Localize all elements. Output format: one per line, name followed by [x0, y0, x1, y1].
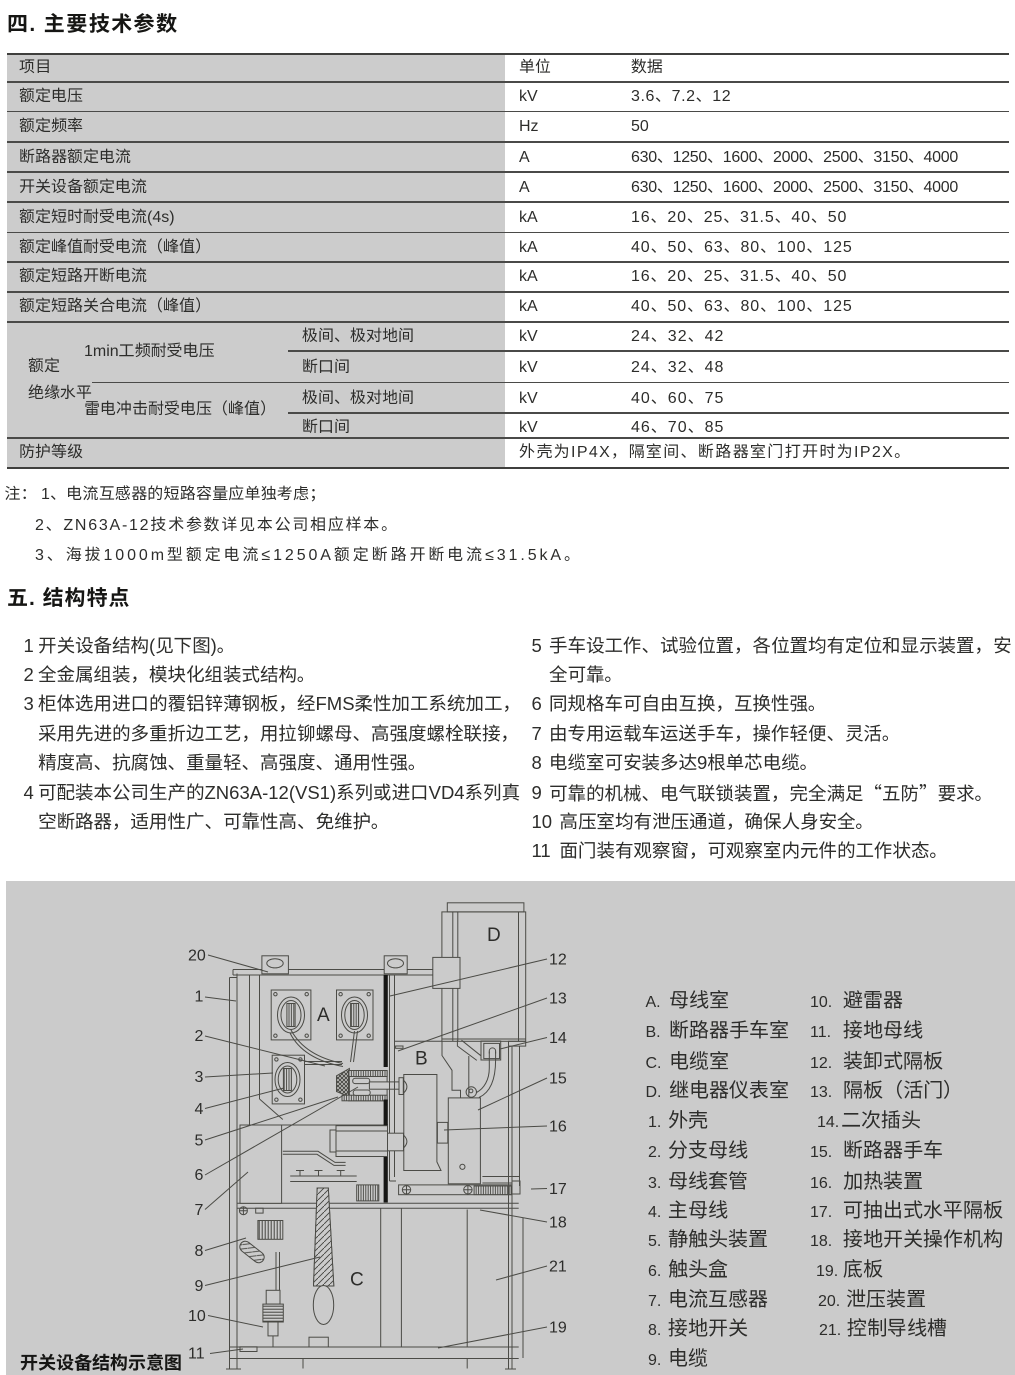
- svg-text:18.: 18.: [810, 1233, 832, 1250]
- svg-text:加热装置: 加热装置: [843, 1171, 923, 1193]
- svg-text:18: 18: [549, 1215, 567, 1232]
- svg-text:16.: 16.: [810, 1175, 832, 1192]
- svg-text:避雷器: 避雷器: [843, 990, 903, 1012]
- svg-text:外壳: 外壳: [668, 1110, 708, 1132]
- svg-text:母线套管: 母线套管: [668, 1171, 748, 1193]
- svg-text:8: 8: [195, 1243, 204, 1260]
- svg-text:泄压装置: 泄压装置: [846, 1289, 926, 1311]
- svg-text:B: B: [415, 1049, 428, 1070]
- svg-text:2: 2: [195, 1028, 204, 1045]
- svg-text:电流互感器: 电流互感器: [668, 1288, 768, 1311]
- svg-text:8.: 8.: [648, 1322, 661, 1339]
- svg-text:B.: B.: [646, 1024, 661, 1041]
- svg-text:7: 7: [195, 1202, 204, 1219]
- svg-text:19: 19: [549, 1319, 567, 1336]
- svg-text:17.: 17.: [810, 1204, 832, 1221]
- svg-text:15: 15: [549, 1071, 567, 1088]
- svg-text:电缆室: 电缆室: [669, 1051, 729, 1073]
- svg-text:触头盒: 触头盒: [668, 1258, 728, 1281]
- svg-text:D: D: [487, 925, 501, 946]
- svg-text:9: 9: [195, 1278, 204, 1295]
- svg-text:2.: 2.: [648, 1144, 661, 1161]
- svg-text:断路器手车: 断路器手车: [843, 1139, 943, 1162]
- svg-text:断路器手车室: 断路器手车室: [669, 1019, 789, 1042]
- svg-text:C.: C.: [646, 1055, 662, 1072]
- svg-text:分支母线: 分支母线: [668, 1140, 748, 1162]
- svg-text:21: 21: [549, 1258, 567, 1275]
- svg-text:4: 4: [195, 1101, 204, 1118]
- svg-text:A.: A.: [646, 994, 661, 1011]
- svg-text:接地母线: 接地母线: [843, 1019, 923, 1042]
- svg-text:主母线: 主母线: [668, 1200, 728, 1222]
- svg-text:15.: 15.: [810, 1144, 832, 1161]
- svg-text:继电器仪表室: 继电器仪表室: [669, 1080, 789, 1102]
- svg-text:6: 6: [195, 1167, 204, 1184]
- svg-text:20: 20: [188, 948, 206, 965]
- svg-text:6.: 6.: [648, 1263, 661, 1280]
- svg-text:可抽出式水平隔板: 可抽出式水平隔板: [843, 1200, 1003, 1222]
- svg-text:17: 17: [549, 1181, 567, 1198]
- svg-text:装卸式隔板: 装卸式隔板: [843, 1051, 943, 1073]
- svg-text:11.: 11.: [810, 1024, 831, 1041]
- svg-text:1: 1: [195, 989, 204, 1006]
- svg-text:C: C: [350, 1270, 364, 1291]
- svg-text:10: 10: [188, 1308, 206, 1325]
- svg-text:控制导线槽: 控制导线槽: [847, 1318, 947, 1340]
- svg-text:4.: 4.: [648, 1204, 661, 1221]
- svg-text:母线室: 母线室: [669, 990, 729, 1012]
- svg-text:电缆: 电缆: [668, 1348, 708, 1370]
- svg-text:接地开关: 接地开关: [668, 1317, 748, 1340]
- svg-text:12.: 12.: [810, 1055, 832, 1072]
- svg-text:12: 12: [549, 951, 567, 968]
- svg-text:14: 14: [549, 1030, 567, 1047]
- svg-text:19.: 19.: [816, 1263, 838, 1280]
- svg-text:D.: D.: [646, 1084, 662, 1101]
- svg-text:3: 3: [195, 1069, 204, 1086]
- svg-text:接地开关操作机构: 接地开关操作机构: [843, 1228, 1003, 1251]
- svg-text:16: 16: [549, 1119, 567, 1136]
- svg-text:3.: 3.: [648, 1175, 661, 1192]
- svg-text:5: 5: [195, 1133, 204, 1150]
- svg-text:10.: 10.: [810, 994, 832, 1011]
- svg-text:13.: 13.: [810, 1084, 832, 1101]
- svg-text:隔板（活门）: 隔板（活门）: [843, 1079, 963, 1102]
- svg-text:静触头装置: 静触头装置: [668, 1229, 768, 1251]
- svg-text:21.: 21.: [819, 1322, 841, 1339]
- svg-text:20.: 20.: [818, 1293, 840, 1310]
- svg-text:二次插头: 二次插头: [841, 1110, 921, 1132]
- svg-text:1.: 1.: [648, 1114, 661, 1131]
- svg-text:9.: 9.: [648, 1352, 661, 1369]
- svg-text:5.: 5.: [648, 1233, 661, 1250]
- svg-text:13: 13: [549, 991, 567, 1008]
- svg-text:7.: 7.: [648, 1293, 661, 1310]
- svg-text:A: A: [317, 1005, 330, 1026]
- svg-text:11: 11: [188, 1346, 205, 1363]
- svg-text:底板: 底板: [843, 1258, 883, 1281]
- svg-text:14.: 14.: [817, 1114, 839, 1131]
